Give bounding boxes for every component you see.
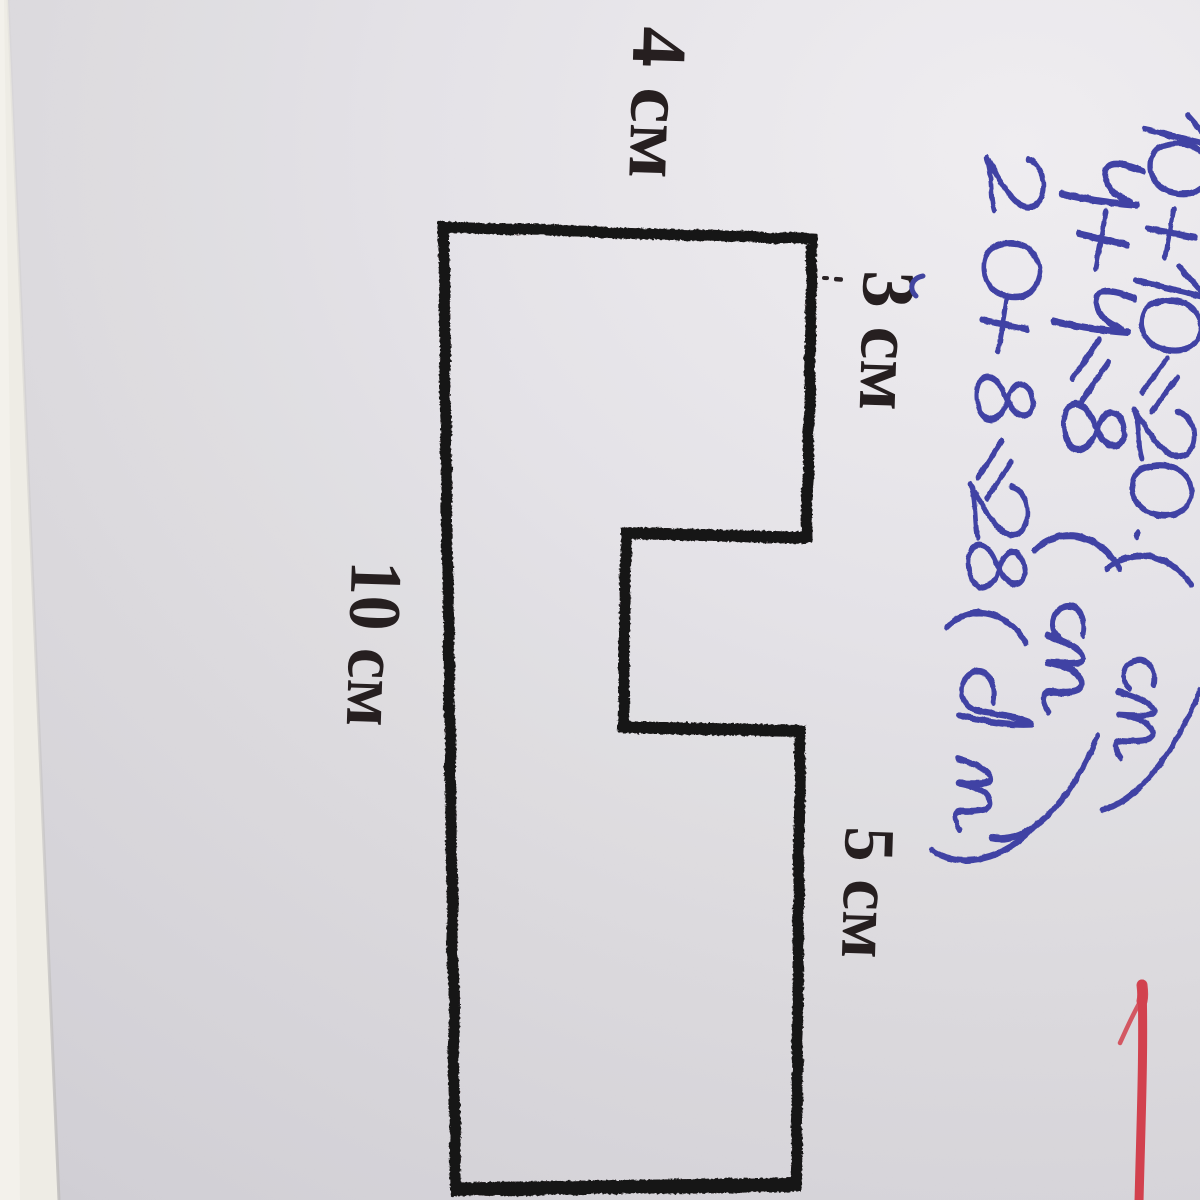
svg-text:4 см: 4 см [612,25,704,180]
svg-text:10 см: 10 см [330,559,417,727]
svg-text:3 см: 3 см [843,269,931,412]
svg-text:5 см: 5 см [826,825,910,959]
